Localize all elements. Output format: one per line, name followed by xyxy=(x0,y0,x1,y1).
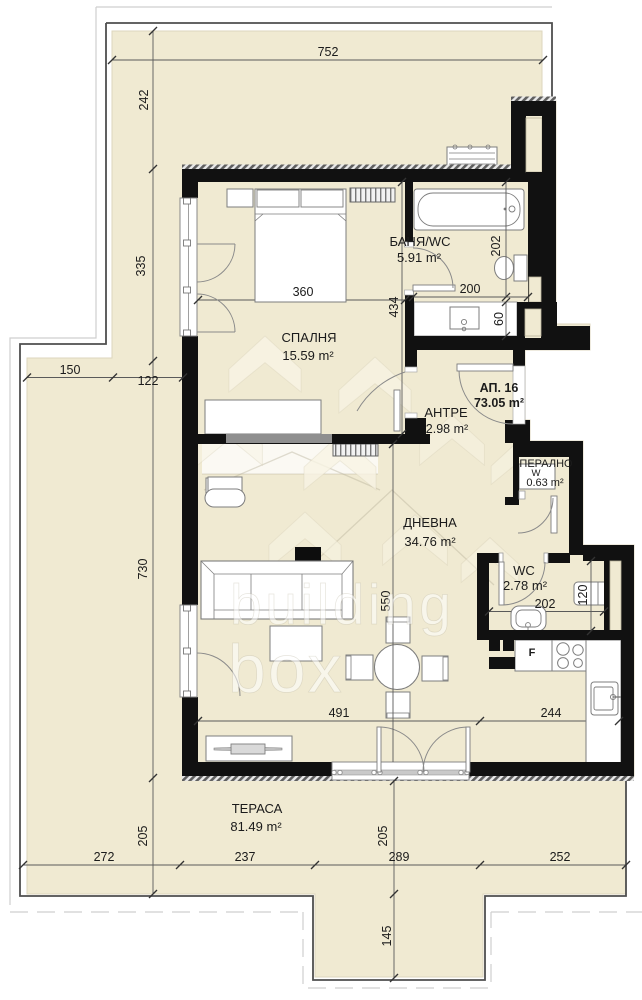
svg-text:34.76 m²: 34.76 m² xyxy=(404,534,456,549)
svg-text:АНТРЕ: АНТРЕ xyxy=(424,405,468,420)
svg-text:5.91 m²: 5.91 m² xyxy=(397,250,442,265)
svg-text:202: 202 xyxy=(489,236,503,257)
svg-text:building: building xyxy=(230,573,455,637)
svg-text:0.63 m²: 0.63 m² xyxy=(526,477,564,489)
svg-text:WC: WC xyxy=(513,563,535,578)
svg-text:252: 252 xyxy=(550,850,571,864)
svg-text:272: 272 xyxy=(94,850,115,864)
svg-text:145: 145 xyxy=(380,926,394,947)
svg-text:F: F xyxy=(529,647,536,659)
svg-text:box: box xyxy=(228,631,344,707)
svg-text:73.05 m²: 73.05 m² xyxy=(474,396,524,410)
svg-text:205: 205 xyxy=(376,826,390,847)
svg-text:ПЕРАЛНО: ПЕРАЛНО xyxy=(519,458,573,470)
svg-text:ДНЕВНА: ДНЕВНА xyxy=(403,515,457,530)
svg-text:752: 752 xyxy=(318,45,339,59)
svg-text:289: 289 xyxy=(389,850,410,864)
svg-text:237: 237 xyxy=(235,850,256,864)
svg-text:360: 360 xyxy=(293,285,314,299)
svg-text:2.98 m²: 2.98 m² xyxy=(426,422,468,436)
svg-text:15.59 m²: 15.59 m² xyxy=(282,348,334,363)
svg-text:СПАЛНЯ: СПАЛНЯ xyxy=(282,330,337,345)
svg-text:491: 491 xyxy=(329,706,350,720)
svg-text:АП. 16: АП. 16 xyxy=(480,381,519,395)
svg-text:200: 200 xyxy=(460,282,481,296)
svg-text:2.78 m²: 2.78 m² xyxy=(503,578,548,593)
svg-text:335: 335 xyxy=(134,256,148,277)
svg-text:БАНЯ/WC: БАНЯ/WC xyxy=(390,234,451,249)
svg-text:ТЕРАСА: ТЕРАСА xyxy=(232,801,283,816)
svg-text:81.49 m²: 81.49 m² xyxy=(230,819,282,834)
svg-text:730: 730 xyxy=(136,559,150,580)
svg-text:60: 60 xyxy=(492,312,506,326)
svg-text:244: 244 xyxy=(541,706,562,720)
svg-text:150: 150 xyxy=(60,363,81,377)
svg-text:120: 120 xyxy=(576,585,590,606)
svg-text:122: 122 xyxy=(138,374,159,388)
svg-text:205: 205 xyxy=(136,826,150,847)
svg-text:434: 434 xyxy=(387,297,401,318)
svg-text:242: 242 xyxy=(137,90,151,111)
svg-text:202: 202 xyxy=(535,597,556,611)
